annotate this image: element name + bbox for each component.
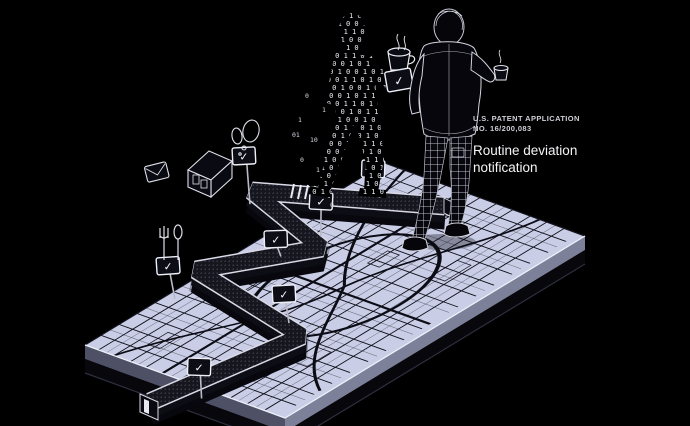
notification-card-icon: ✓	[384, 68, 413, 92]
patent-label-line2: NO. 16/200,083	[473, 124, 532, 133]
check-glyph: ✓	[194, 361, 204, 374]
patent-label-line1: U.S. PATENT APPLICATION	[473, 114, 580, 123]
shoe	[444, 223, 470, 237]
stray-bit: 0	[305, 92, 309, 100]
stray-bit: 10	[310, 136, 318, 144]
stray-bit: 0	[330, 201, 334, 209]
illustration-stage: ✓ ✓ ✓ ✓ ✓ ✓ ✓	[0, 0, 690, 426]
shoe	[402, 237, 428, 251]
stray-bit: 01	[292, 131, 300, 139]
patent-illustration: ✓ ✓ ✓ ✓ ✓ ✓ ✓	[0, 0, 690, 426]
check-glyph: ✓	[316, 195, 326, 208]
stray-bit: 0	[300, 156, 304, 164]
illustration-title-line1: Routine deviation	[473, 143, 577, 158]
check-glyph: ✓	[271, 233, 281, 246]
check-glyph: ✓	[239, 150, 249, 163]
check-glyph: ✓	[279, 288, 289, 301]
stray-bit: 1	[322, 106, 326, 114]
illustration-title-line2: notification	[473, 160, 538, 175]
stray-bit: 1	[298, 116, 302, 124]
check-glyph: ✓	[163, 260, 173, 274]
stray-bit: 1	[316, 166, 320, 174]
